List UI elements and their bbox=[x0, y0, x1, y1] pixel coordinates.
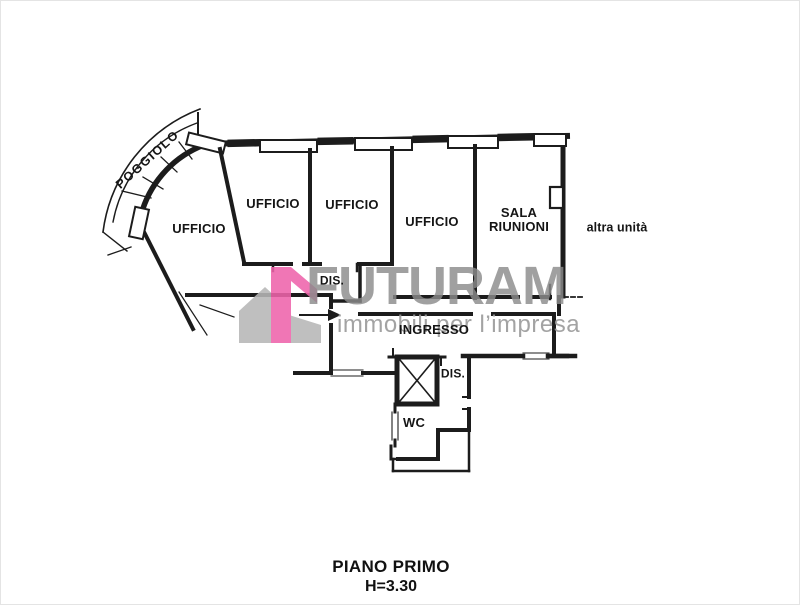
room-label-ufficio-4: UFFICIO bbox=[405, 215, 458, 229]
room-label-ingresso: INGRESSO bbox=[399, 323, 469, 337]
floor-plan-page: FUTURAM immobili per l’impresa POGGIOLO … bbox=[0, 0, 800, 605]
room-label-ufficio-1: UFFICIO bbox=[172, 222, 225, 236]
room-label-ufficio-2: UFFICIO bbox=[246, 197, 299, 211]
room-label-dis-1: DIS. bbox=[320, 275, 344, 288]
room-label-dis-2: DIS. bbox=[441, 368, 465, 381]
window-glazing bbox=[228, 134, 549, 441]
entrance-arrow-icon bbox=[300, 309, 341, 321]
door-leaf-right bbox=[550, 187, 563, 208]
room-label-wc: WC bbox=[403, 416, 425, 430]
elevator-shaft bbox=[397, 357, 437, 404]
floor-height: H=3.30 bbox=[365, 578, 417, 596]
floor-plan-drawing bbox=[1, 1, 800, 605]
room-label-ufficio-3: UFFICIO bbox=[325, 198, 378, 212]
interior-partitions bbox=[187, 146, 567, 471]
floor-title: PIANO PRIMO bbox=[332, 557, 450, 577]
room-label-sala-riunioni: SALA RIUNIONI bbox=[486, 206, 552, 234]
adjacent-unit-label: altra unità bbox=[587, 221, 648, 235]
